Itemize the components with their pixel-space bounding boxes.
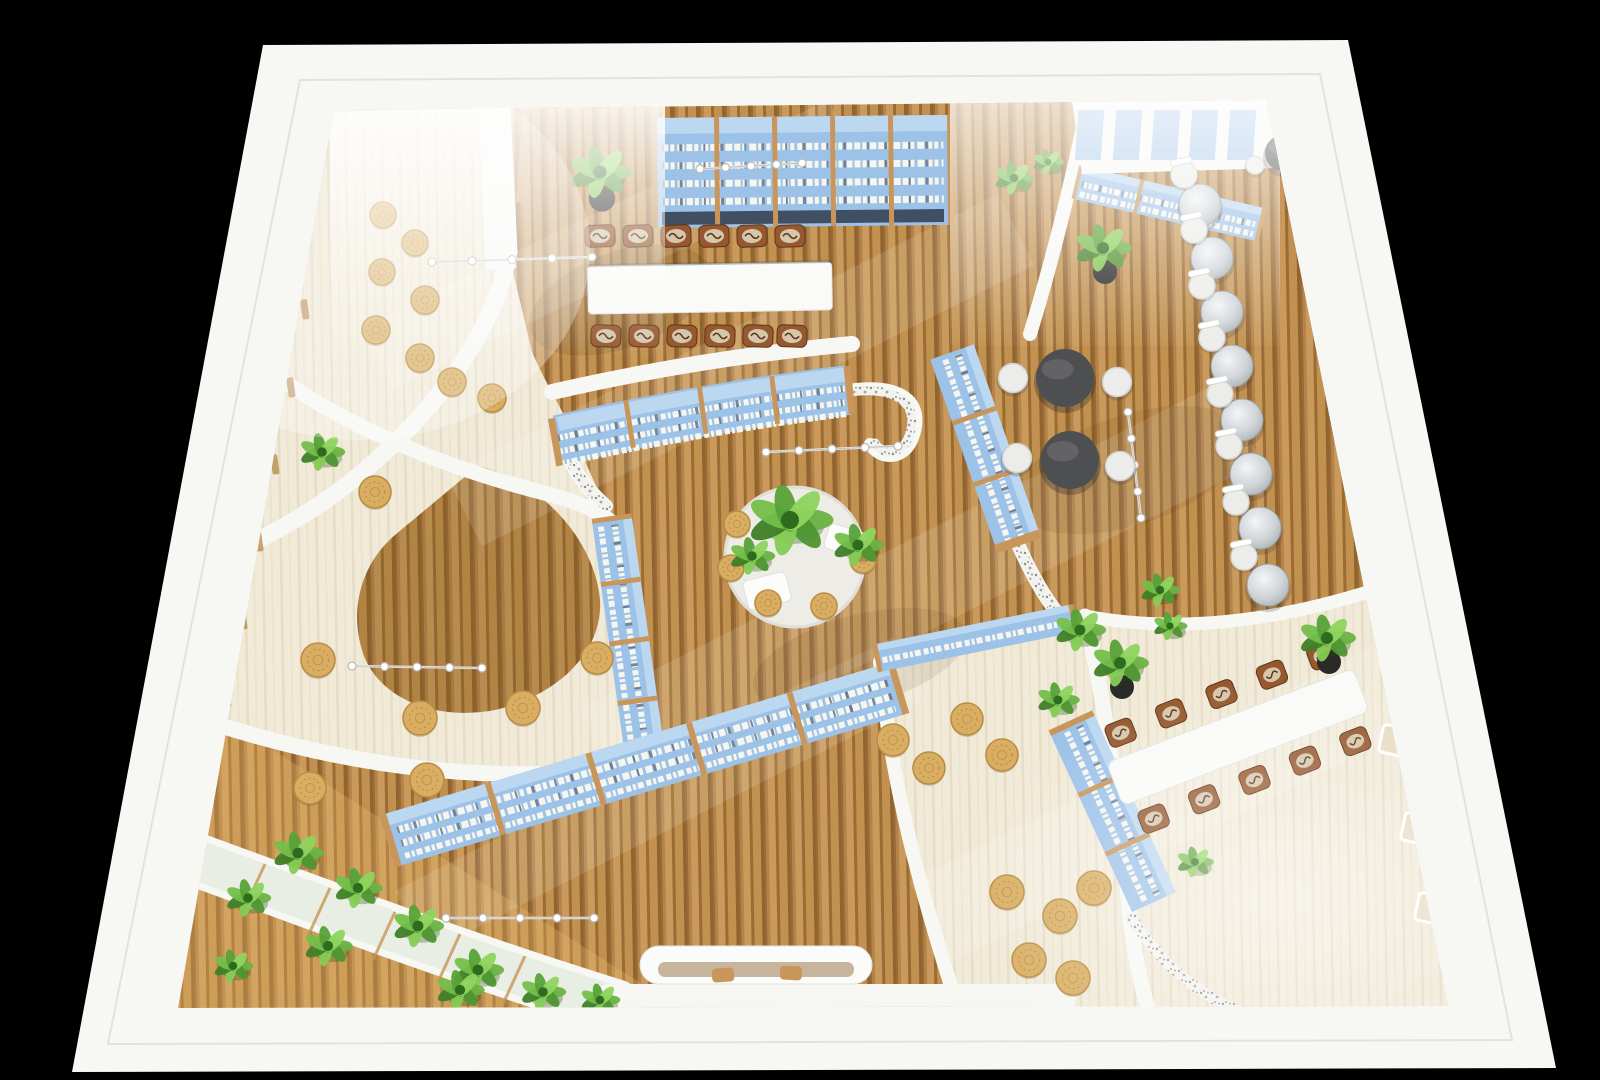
patterned-chair bbox=[661, 224, 692, 247]
patterned-chair bbox=[705, 324, 736, 347]
floor-cushion bbox=[811, 593, 837, 621]
patterned-chair bbox=[737, 224, 768, 247]
patterned-chair bbox=[775, 224, 806, 247]
floor-cushion bbox=[913, 752, 945, 786]
patterned-chair bbox=[699, 224, 730, 247]
floor-cushion bbox=[403, 701, 437, 737]
floor-cushion bbox=[877, 724, 909, 758]
left-lounge-wash bbox=[130, 60, 590, 440]
floor-cushion bbox=[410, 763, 444, 799]
top-wash-right bbox=[950, 96, 1280, 346]
floor-cushion bbox=[986, 739, 1018, 773]
floor-cushion bbox=[294, 772, 326, 806]
library-floorplan-rendering bbox=[0, 0, 1600, 1080]
floor-cushion bbox=[359, 476, 391, 510]
floor-cushion bbox=[301, 643, 335, 679]
render-canvas bbox=[0, 0, 1600, 1080]
floor-cushion bbox=[506, 691, 540, 727]
floor-cushion bbox=[755, 590, 781, 618]
patterned-chair bbox=[743, 324, 774, 347]
floor-cushion bbox=[951, 703, 983, 737]
floor-cushion bbox=[724, 511, 750, 539]
floor-cushion bbox=[581, 642, 613, 676]
patterned-chair bbox=[777, 324, 808, 347]
patterned-chair bbox=[667, 324, 698, 347]
